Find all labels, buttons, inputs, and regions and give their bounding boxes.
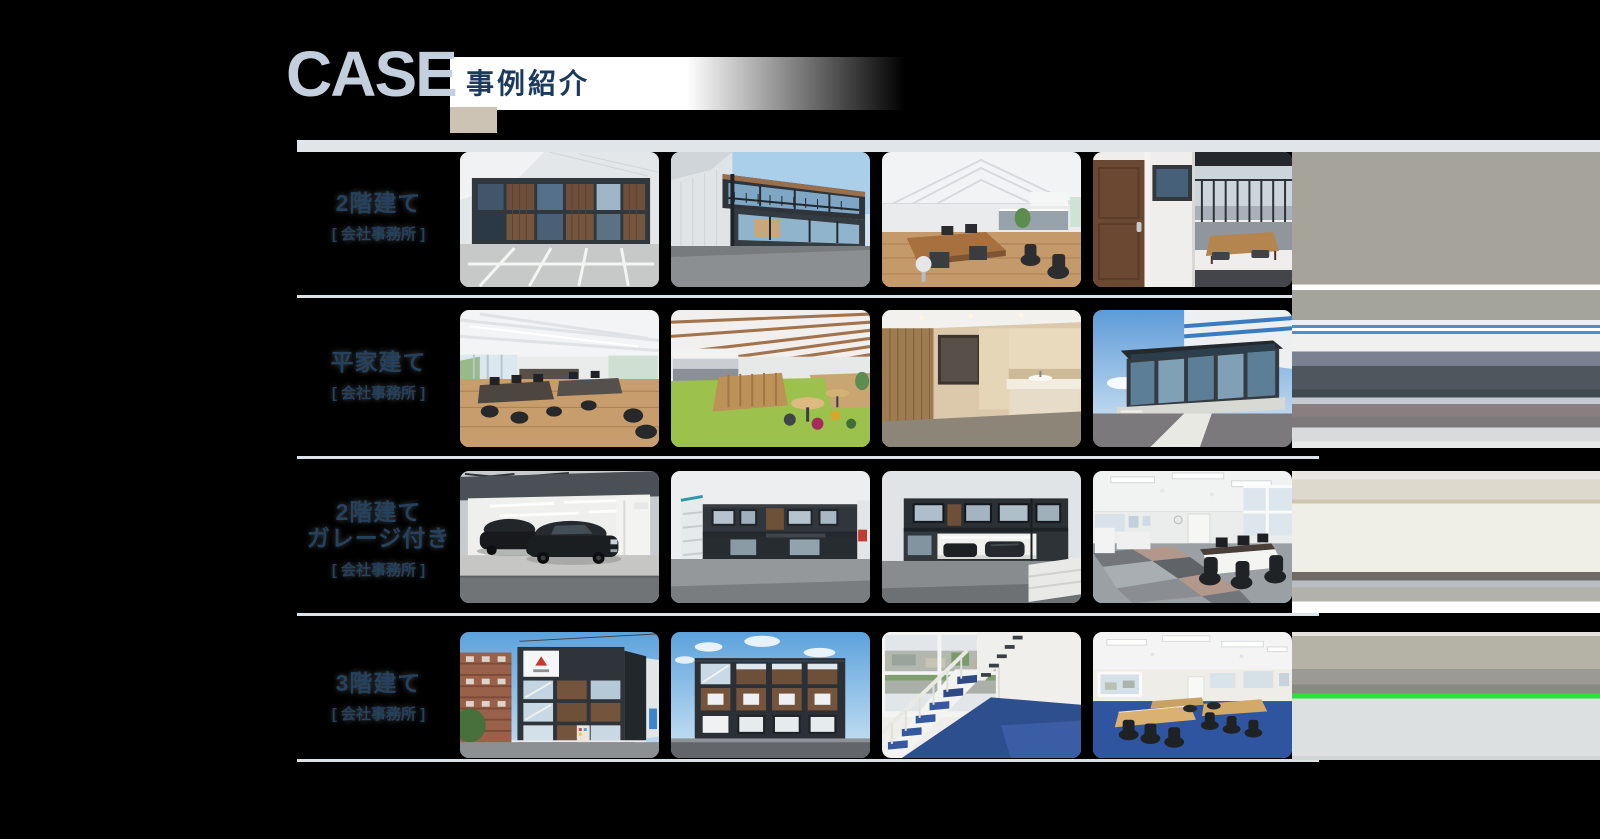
photo-illustration xyxy=(460,152,659,287)
case-photo[interactable] xyxy=(460,471,659,603)
row-label-2story-garage: 2階建て ガレージ付き [ 会社事務所 ] xyxy=(297,499,460,580)
row-subtitle: [ 会社事務所 ] xyxy=(297,223,460,244)
case-photo[interactable] xyxy=(671,152,870,287)
photo-illustration xyxy=(1093,632,1292,758)
photo-illustration xyxy=(882,632,1081,758)
case-photo[interactable] xyxy=(1093,471,1292,603)
photo-edge-smear xyxy=(1292,152,1600,290)
photo-illustration xyxy=(460,632,659,758)
row-subtitle: [ 会社事務所 ] xyxy=(297,559,460,580)
row-title: 2階建て xyxy=(297,190,460,216)
section-subtitle: 事例紹介 xyxy=(466,67,590,101)
photo-illustration xyxy=(671,471,870,603)
photo-edge-smear xyxy=(1292,632,1600,760)
row-title: 3階建て xyxy=(297,670,460,696)
row-subtitle: [ 会社事務所 ] xyxy=(297,703,460,724)
row-label-1story: 平家建て [ 会社事務所 ] xyxy=(297,349,460,403)
case-photo[interactable] xyxy=(882,152,1081,287)
row-separator xyxy=(297,456,1319,459)
case-photo[interactable] xyxy=(671,471,870,603)
row-label-2story: 2階建て [ 会社事務所 ] xyxy=(297,190,460,244)
photo-illustration xyxy=(671,152,870,287)
row-label-3story: 3階建て [ 会社事務所 ] xyxy=(297,670,460,724)
case-photo[interactable] xyxy=(460,632,659,758)
section-title: CASE xyxy=(286,42,456,106)
case-photo[interactable] xyxy=(671,632,870,758)
case-photo[interactable] xyxy=(1093,310,1292,447)
case-photo-row-3 xyxy=(460,471,1292,603)
case-photo-row-4 xyxy=(460,632,1292,758)
case-photo-row-1 xyxy=(460,152,1292,287)
case-photo[interactable] xyxy=(1093,632,1292,758)
photo-illustration xyxy=(671,632,870,758)
photo-illustration xyxy=(1093,471,1292,603)
case-photo-row-2 xyxy=(460,310,1292,447)
case-photo[interactable] xyxy=(671,310,870,447)
case-photo[interactable] xyxy=(460,152,659,287)
case-photo[interactable] xyxy=(882,471,1081,603)
row-subtitle: [ 会社事務所 ] xyxy=(297,382,460,403)
row-separator xyxy=(297,613,1319,616)
photo-illustration xyxy=(1093,152,1292,287)
case-photo[interactable] xyxy=(882,310,1081,447)
case-photo[interactable] xyxy=(1093,152,1292,287)
row-separator xyxy=(297,295,1319,298)
photo-edge-smear xyxy=(1292,471,1600,613)
photo-illustration xyxy=(882,310,1081,447)
row-title: 2階建て xyxy=(297,499,460,525)
photo-illustration xyxy=(460,471,659,603)
photo-illustration xyxy=(1093,310,1292,447)
header-underline-band xyxy=(297,140,1600,152)
photo-illustration xyxy=(882,152,1081,287)
photo-illustration xyxy=(882,471,1081,603)
photo-illustration xyxy=(460,310,659,447)
case-photo[interactable] xyxy=(882,632,1081,758)
photo-edge-smear xyxy=(1292,290,1600,448)
row-title: 平家建て xyxy=(297,349,460,375)
decor-beige-box xyxy=(450,107,497,133)
case-photo[interactable] xyxy=(460,310,659,447)
row-separator xyxy=(297,759,1319,762)
photo-illustration xyxy=(671,310,870,447)
row-title-line2: ガレージ付き xyxy=(297,525,460,551)
case-section: CASE 事例紹介 2階建て [ 会社事務所 ] 平家建て [ 会社事務所 ] … xyxy=(0,0,1600,839)
